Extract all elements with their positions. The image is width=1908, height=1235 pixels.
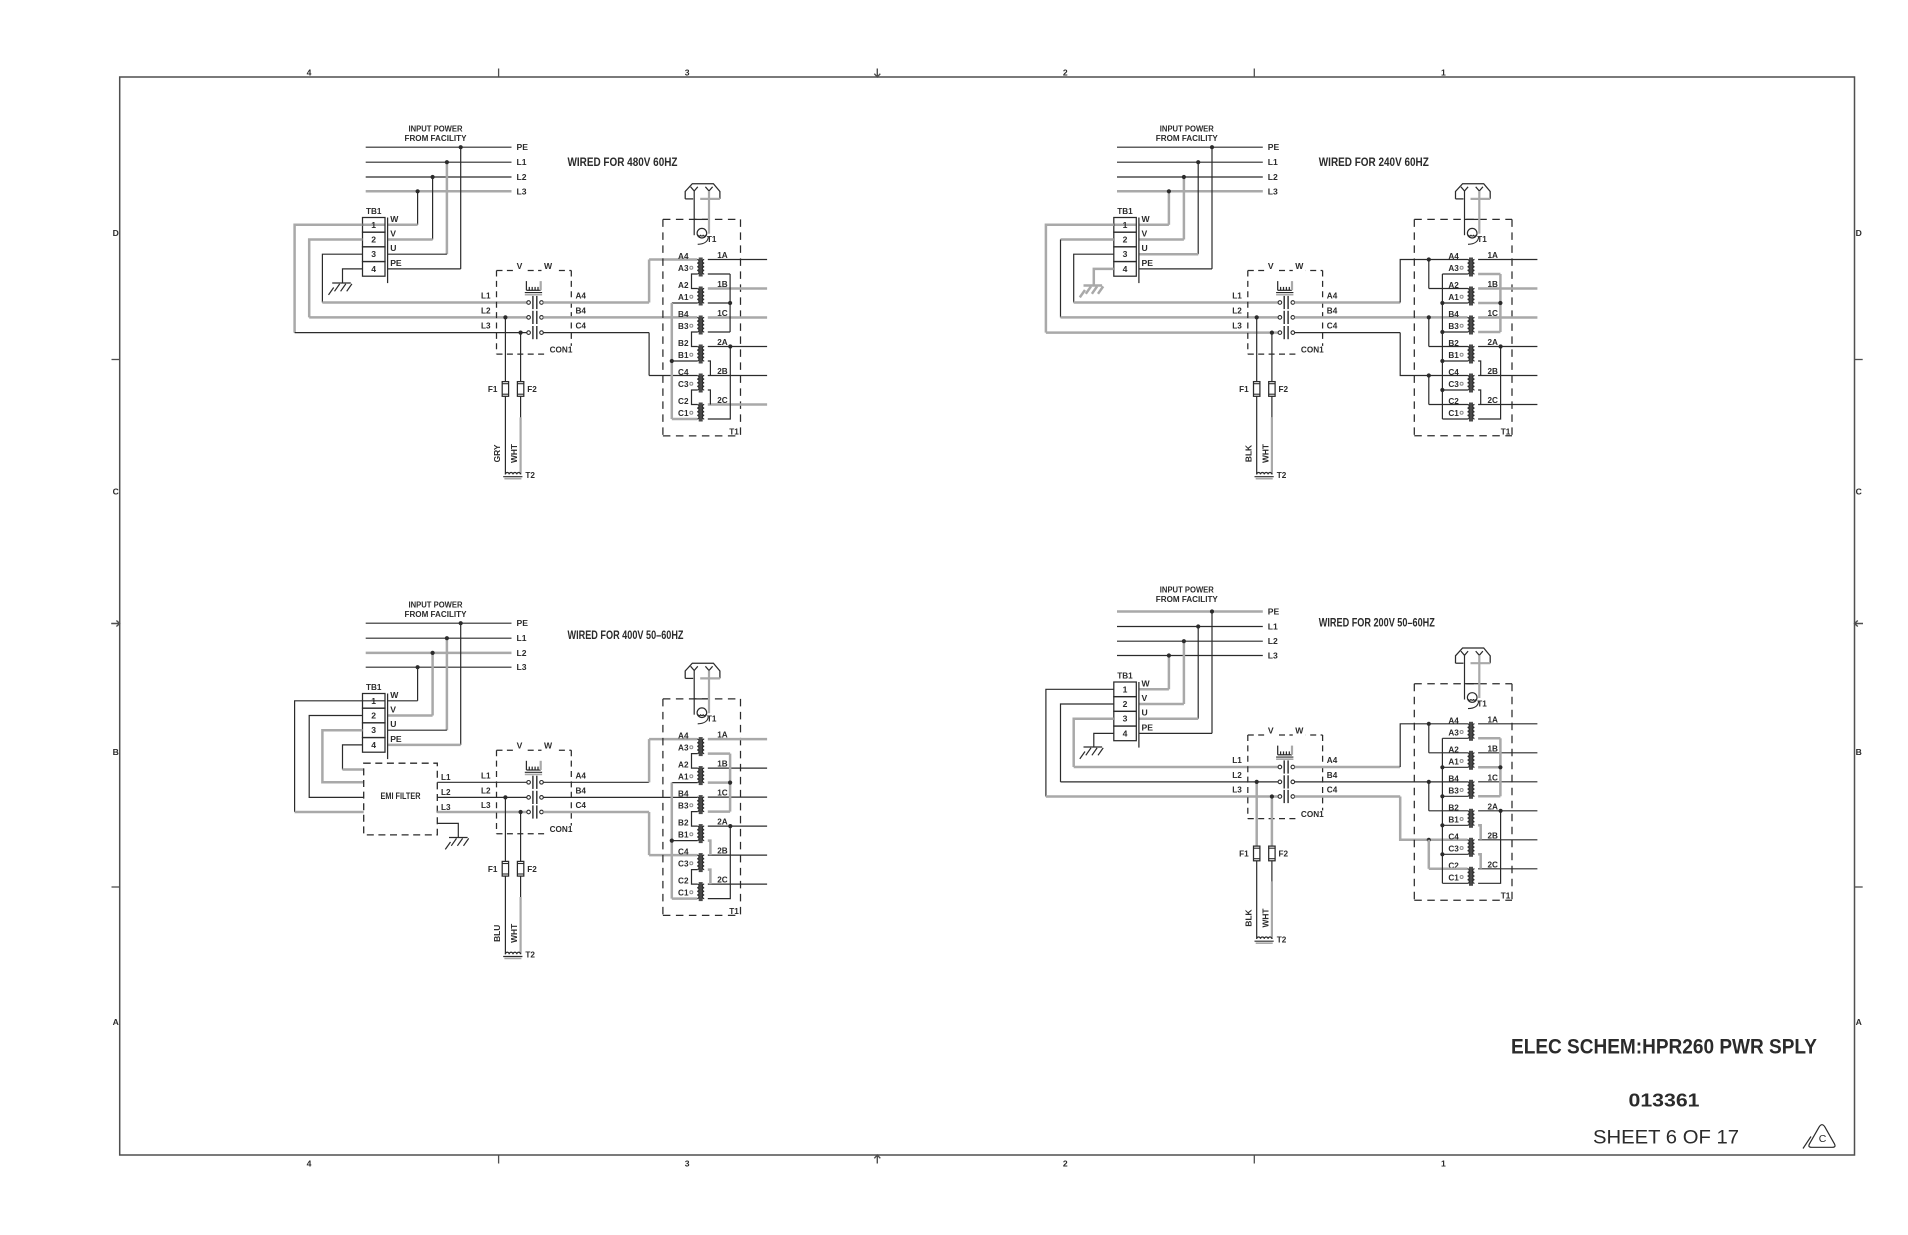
svg-text:L1: L1 <box>441 773 451 782</box>
svg-text:L3: L3 <box>481 322 491 331</box>
svg-text:C: C <box>1819 1133 1827 1145</box>
svg-text:A: A <box>113 1017 119 1027</box>
svg-text:B2: B2 <box>678 339 689 348</box>
svg-text:B4: B4 <box>576 306 587 315</box>
svg-text:L3: L3 <box>481 801 491 810</box>
svg-text:L1: L1 <box>1232 756 1242 765</box>
svg-text:B3: B3 <box>1448 322 1459 331</box>
svg-text:4: 4 <box>307 68 312 78</box>
svg-text:T1: T1 <box>729 427 739 436</box>
svg-text:C4: C4 <box>576 801 587 810</box>
svg-text:F1: F1 <box>1239 385 1249 394</box>
svg-text:PE: PE <box>1268 607 1280 617</box>
svg-text:A3: A3 <box>678 744 689 753</box>
svg-text:1C: 1C <box>717 789 728 798</box>
svg-text:A4: A4 <box>1327 756 1338 765</box>
svg-text:A1: A1 <box>1448 757 1459 766</box>
svg-text:L3: L3 <box>441 803 451 812</box>
svg-text:C4: C4 <box>576 322 587 331</box>
svg-text:2B: 2B <box>1488 831 1499 840</box>
svg-text:A4: A4 <box>678 732 689 741</box>
svg-text:L3: L3 <box>517 662 527 672</box>
svg-text:T1: T1 <box>1477 235 1487 244</box>
svg-text:L1: L1 <box>1268 622 1278 632</box>
svg-text:L2: L2 <box>481 306 491 315</box>
svg-text:1: 1 <box>1441 1159 1446 1169</box>
svg-text:C3: C3 <box>1448 380 1459 389</box>
svg-text:FROM FACILITY: FROM FACILITY <box>1156 133 1218 143</box>
svg-text:C1: C1 <box>1448 409 1459 418</box>
svg-text:L3: L3 <box>517 186 527 196</box>
svg-text:2B: 2B <box>1488 367 1499 376</box>
svg-text:V: V <box>1268 261 1274 271</box>
svg-text:C1: C1 <box>678 409 689 418</box>
svg-text:B3: B3 <box>678 322 689 331</box>
svg-text:A3: A3 <box>1448 728 1459 737</box>
svg-text:C: C <box>1856 487 1862 497</box>
svg-text:A4: A4 <box>576 292 587 301</box>
svg-text:1: 1 <box>371 220 376 230</box>
svg-text:TB1: TB1 <box>1117 207 1133 216</box>
svg-text:T1: T1 <box>707 235 717 244</box>
svg-text:B3: B3 <box>1448 786 1459 795</box>
svg-text:PE: PE <box>1142 722 1154 732</box>
svg-text:C3: C3 <box>1448 844 1459 853</box>
svg-text:W: W <box>1295 261 1304 271</box>
svg-text:L2: L2 <box>1268 172 1278 182</box>
svg-text:A1: A1 <box>678 293 689 302</box>
svg-text:2A: 2A <box>717 818 728 827</box>
svg-text:4: 4 <box>1123 728 1128 738</box>
svg-text:INPUT POWER: INPUT POWER <box>409 123 464 133</box>
svg-text:B: B <box>113 747 119 757</box>
svg-text:T2: T2 <box>1277 935 1287 944</box>
svg-text:1: 1 <box>1441 68 1446 78</box>
svg-text:GRY: GRY <box>492 444 502 462</box>
svg-text:013361: 013361 <box>1629 1090 1700 1111</box>
svg-text:3: 3 <box>1123 249 1128 259</box>
svg-text:2: 2 <box>371 711 376 721</box>
svg-text:T2: T2 <box>525 951 535 960</box>
svg-text:B1: B1 <box>678 351 689 360</box>
svg-text:PE: PE <box>390 734 402 744</box>
svg-text:C2: C2 <box>678 397 689 406</box>
svg-text:C4: C4 <box>678 848 689 857</box>
svg-text:2: 2 <box>1123 699 1128 709</box>
svg-text:W: W <box>1142 214 1151 224</box>
svg-text:L1: L1 <box>481 292 491 301</box>
svg-text:3: 3 <box>1123 714 1128 724</box>
svg-text:A2: A2 <box>678 281 689 290</box>
svg-text:PE: PE <box>517 142 529 152</box>
svg-text:BLK: BLK <box>1244 445 1254 462</box>
svg-text:B4: B4 <box>576 786 587 795</box>
svg-text:C3: C3 <box>678 860 689 869</box>
svg-text:C4: C4 <box>678 368 689 377</box>
svg-text:T1: T1 <box>1501 427 1511 436</box>
svg-text:D: D <box>113 228 119 238</box>
svg-text:SHEET 6 OF 17: SHEET 6 OF 17 <box>1593 1127 1739 1149</box>
svg-text:W: W <box>1142 678 1151 688</box>
svg-text:W: W <box>390 690 399 700</box>
svg-text:L1: L1 <box>517 633 527 643</box>
svg-text:U: U <box>390 243 396 253</box>
svg-text:B4: B4 <box>1448 310 1459 319</box>
svg-text:L3: L3 <box>1268 186 1278 196</box>
svg-text:WHT: WHT <box>509 443 519 463</box>
svg-text:1: 1 <box>371 696 376 706</box>
svg-text:B1: B1 <box>678 831 689 840</box>
svg-text:W: W <box>544 261 553 271</box>
svg-text:WIRED FOR 400V 50–60HZ: WIRED FOR 400V 50–60HZ <box>568 630 684 642</box>
svg-text:L1: L1 <box>1232 292 1242 301</box>
svg-text:A3: A3 <box>1448 264 1459 273</box>
svg-text:4: 4 <box>371 740 376 750</box>
svg-text:A1: A1 <box>678 773 689 782</box>
svg-text:PE: PE <box>517 618 529 628</box>
svg-text:2: 2 <box>371 235 376 245</box>
svg-text:1B: 1B <box>717 760 728 769</box>
svg-text:B4: B4 <box>1448 774 1459 783</box>
svg-text:A1: A1 <box>1448 293 1459 302</box>
svg-text:ELEC SCHEM:HPR260 PWR SPLY: ELEC SCHEM:HPR260 PWR SPLY <box>1511 1035 1817 1059</box>
svg-text:C4: C4 <box>1448 368 1459 377</box>
svg-text:2: 2 <box>1123 235 1128 245</box>
svg-text:3: 3 <box>685 1159 690 1169</box>
svg-text:2C: 2C <box>717 876 728 885</box>
svg-text:T2: T2 <box>525 471 535 480</box>
svg-text:EMI FILTER: EMI FILTER <box>381 791 422 801</box>
svg-text:C4: C4 <box>1448 832 1459 841</box>
svg-text:T2: T2 <box>1277 471 1287 480</box>
svg-text:2A: 2A <box>1488 802 1499 811</box>
svg-text:V: V <box>1142 229 1148 239</box>
svg-text:2A: 2A <box>717 338 728 347</box>
svg-text:B4: B4 <box>678 310 689 319</box>
svg-text:L1: L1 <box>1268 157 1278 167</box>
svg-text:TB1: TB1 <box>366 207 382 216</box>
svg-text:L2: L2 <box>1232 306 1242 315</box>
svg-text:C1: C1 <box>678 889 689 898</box>
svg-text:WIRED FOR 200V 50–60HZ: WIRED FOR 200V 50–60HZ <box>1319 618 1435 630</box>
svg-text:C3: C3 <box>678 380 689 389</box>
svg-text:U: U <box>390 719 396 729</box>
svg-text:1: 1 <box>1123 220 1128 230</box>
svg-text:L2: L2 <box>517 648 527 658</box>
svg-text:B1: B1 <box>1448 351 1459 360</box>
svg-text:L1: L1 <box>481 771 491 780</box>
svg-text:V: V <box>390 229 396 239</box>
svg-text:B3: B3 <box>678 802 689 811</box>
svg-text:3: 3 <box>371 725 376 735</box>
svg-text:2: 2 <box>1063 1159 1068 1169</box>
svg-text:V: V <box>517 741 523 751</box>
svg-text:WHT: WHT <box>1261 443 1271 463</box>
svg-text:F2: F2 <box>527 385 537 394</box>
svg-text:L2: L2 <box>1232 771 1242 780</box>
svg-text:B4: B4 <box>1327 306 1338 315</box>
svg-text:PE: PE <box>1142 258 1154 268</box>
svg-text:F2: F2 <box>1279 385 1289 394</box>
svg-text:1A: 1A <box>717 251 728 260</box>
svg-text:1A: 1A <box>1488 715 1499 724</box>
svg-text:C: C <box>113 487 119 497</box>
svg-text:3: 3 <box>685 68 690 78</box>
svg-text:B: B <box>1856 747 1862 757</box>
svg-text:A4: A4 <box>1327 292 1338 301</box>
svg-text:4: 4 <box>371 264 376 274</box>
svg-text:TB1: TB1 <box>1117 671 1133 680</box>
svg-text:F1: F1 <box>1239 850 1249 859</box>
svg-text:WIRED FOR 240V 60HZ: WIRED FOR 240V 60HZ <box>1319 157 1429 169</box>
svg-text:L2: L2 <box>481 786 491 795</box>
svg-text:B4: B4 <box>1327 771 1338 780</box>
svg-text:WIRED FOR 480V 60HZ: WIRED FOR 480V 60HZ <box>568 157 678 169</box>
svg-text:V: V <box>1268 725 1274 735</box>
svg-text:C1: C1 <box>1448 873 1459 882</box>
svg-text:BLU: BLU <box>492 925 502 942</box>
svg-text:WHT: WHT <box>509 923 519 943</box>
svg-text:4: 4 <box>1123 264 1128 274</box>
svg-text:L1: L1 <box>517 157 527 167</box>
svg-text:L2: L2 <box>517 172 527 182</box>
svg-text:1A: 1A <box>1488 251 1499 260</box>
svg-text:4: 4 <box>307 1159 312 1169</box>
svg-text:L3: L3 <box>1268 651 1278 661</box>
svg-text:1: 1 <box>1123 684 1128 694</box>
svg-text:A4: A4 <box>1448 716 1459 725</box>
svg-text:FROM FACILITY: FROM FACILITY <box>405 133 467 143</box>
svg-text:W: W <box>544 741 553 751</box>
svg-text:V: V <box>390 705 396 715</box>
svg-text:2B: 2B <box>717 847 728 856</box>
svg-text:L3: L3 <box>1232 786 1242 795</box>
svg-text:F2: F2 <box>1279 850 1289 859</box>
svg-text:L2: L2 <box>1268 636 1278 646</box>
svg-text:F2: F2 <box>527 865 537 874</box>
svg-text:V: V <box>517 261 523 271</box>
svg-text:D: D <box>1856 228 1862 238</box>
svg-text:B4: B4 <box>678 790 689 799</box>
svg-text:CON1: CON1 <box>550 825 573 834</box>
svg-text:INPUT POWER: INPUT POWER <box>409 599 464 609</box>
svg-text:A4: A4 <box>576 771 587 780</box>
svg-text:3: 3 <box>371 249 376 259</box>
svg-text:L2: L2 <box>441 788 451 797</box>
svg-text:CON1: CON1 <box>1301 346 1324 355</box>
svg-text:W: W <box>1295 725 1304 735</box>
svg-text:U: U <box>1142 243 1148 253</box>
svg-text:CON1: CON1 <box>550 346 573 355</box>
svg-text:T1: T1 <box>707 715 717 724</box>
svg-text:A4: A4 <box>1448 252 1459 261</box>
svg-text:1B: 1B <box>1488 744 1499 753</box>
svg-text:A3: A3 <box>678 264 689 273</box>
svg-text:2C: 2C <box>1488 396 1499 405</box>
svg-text:2: 2 <box>1063 68 1068 78</box>
svg-text:C2: C2 <box>678 877 689 886</box>
svg-text:A2: A2 <box>678 761 689 770</box>
svg-text:B2: B2 <box>678 819 689 828</box>
svg-text:C4: C4 <box>1327 786 1338 795</box>
svg-text:F1: F1 <box>488 865 498 874</box>
svg-text:F1: F1 <box>488 385 498 394</box>
svg-text:T1: T1 <box>1501 892 1511 901</box>
svg-text:FROM FACILITY: FROM FACILITY <box>405 609 467 619</box>
svg-text:A4: A4 <box>678 252 689 261</box>
svg-text:2B: 2B <box>717 367 728 376</box>
svg-text:U: U <box>1142 708 1148 718</box>
svg-text:PE: PE <box>1268 142 1280 152</box>
svg-text:PE: PE <box>390 258 402 268</box>
svg-text:C4: C4 <box>1327 322 1338 331</box>
svg-text:TB1: TB1 <box>366 683 382 692</box>
svg-text:2C: 2C <box>1488 860 1499 869</box>
svg-text:WHT: WHT <box>1261 908 1271 928</box>
svg-text:W: W <box>390 214 399 224</box>
svg-text:T1: T1 <box>729 907 739 916</box>
svg-text:V: V <box>1142 693 1148 703</box>
svg-text:CON1: CON1 <box>1301 810 1324 819</box>
svg-text:A: A <box>1856 1017 1862 1027</box>
svg-text:INPUT POWER: INPUT POWER <box>1160 585 1215 595</box>
svg-text:INPUT POWER: INPUT POWER <box>1160 123 1215 133</box>
svg-text:BLK: BLK <box>1244 909 1254 926</box>
svg-text:1C: 1C <box>1488 773 1499 782</box>
svg-text:T1: T1 <box>1477 700 1487 709</box>
svg-text:L3: L3 <box>1232 322 1242 331</box>
svg-text:FROM FACILITY: FROM FACILITY <box>1156 594 1218 604</box>
svg-text:B1: B1 <box>1448 815 1459 824</box>
svg-text:2A: 2A <box>1488 338 1499 347</box>
